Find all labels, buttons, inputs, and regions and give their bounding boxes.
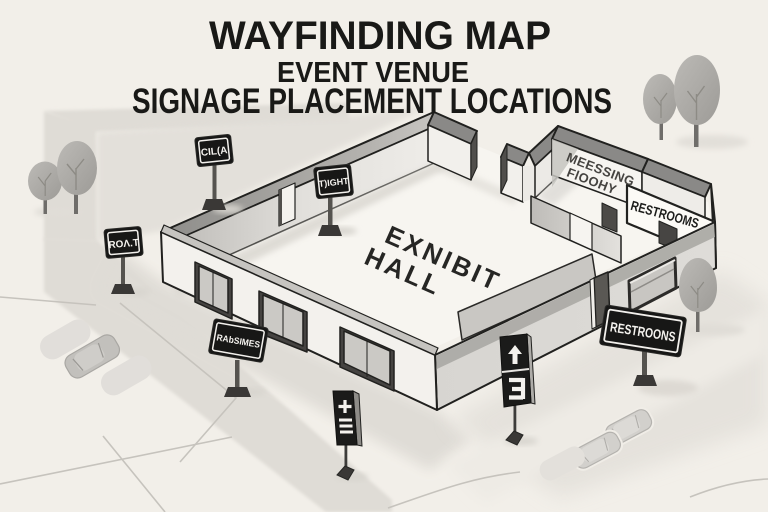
svg-text:SIGNAGE PLACEMENT LOCATIONS: SIGNAGE PLACEMENT LOCATIONS [132, 82, 612, 121]
svg-text:WAYFINDING MAP: WAYFINDING MAP [209, 14, 551, 58]
